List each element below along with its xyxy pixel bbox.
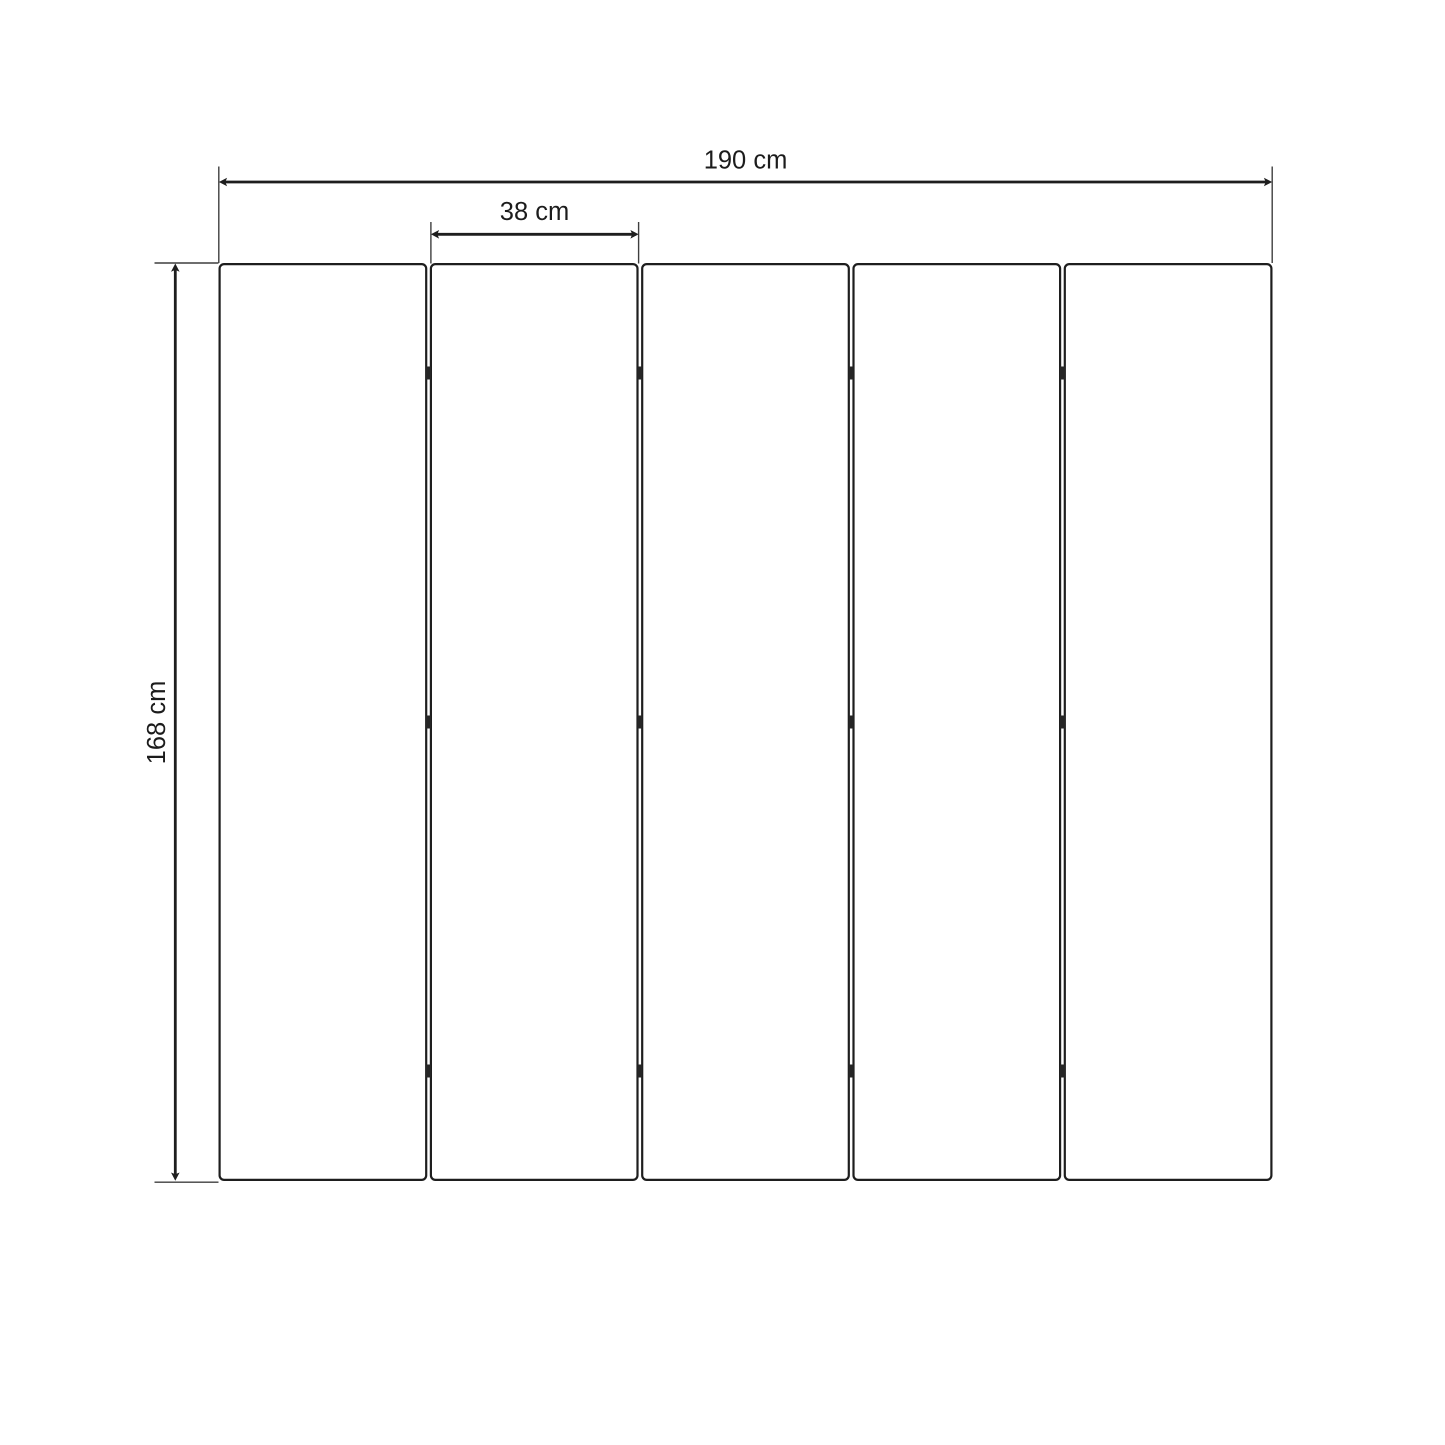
svg-text:190 cm: 190 cm xyxy=(704,146,788,174)
svg-text:168 cm: 168 cm xyxy=(143,681,171,765)
svg-text:38 cm: 38 cm xyxy=(500,198,569,226)
